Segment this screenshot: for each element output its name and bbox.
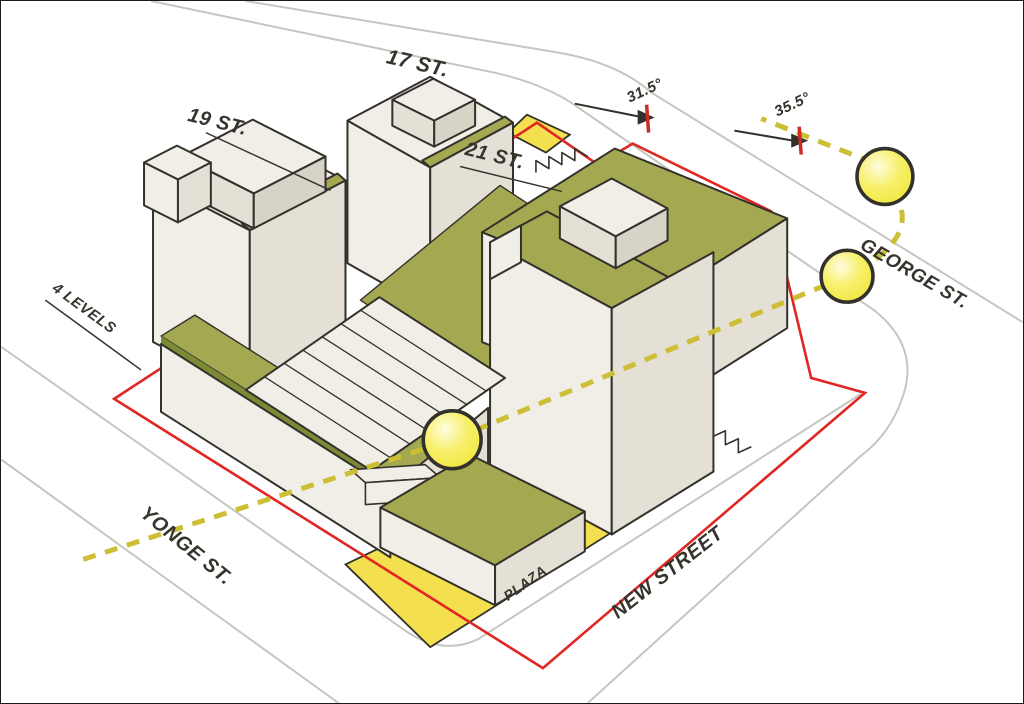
- angle-north-label: 31.5°: [624, 75, 666, 106]
- north-plaza-patch: [508, 115, 570, 153]
- massing-diagram-canvas: 31.5° 35.5° 17 ST. 19 ST. 21 ST. 4 LEVEL…: [0, 0, 1024, 704]
- street-17-label: 17 ST.: [384, 45, 451, 82]
- sun-icon: [423, 411, 481, 469]
- street-yonge-sw-curb: [1, 460, 338, 703]
- angle-arrow-line: [575, 104, 640, 117]
- sun-icon: [857, 149, 913, 205]
- massing-diagram: 31.5° 35.5° 17 ST. 19 ST. 21 ST. 4 LEVEL…: [1, 1, 1023, 703]
- tower-19-label: 19 ST.: [186, 104, 250, 140]
- angle-annotation-east: 35.5°: [734, 89, 813, 155]
- angle-red-tick: [647, 105, 649, 133]
- angle-arrow-line: [734, 131, 793, 141]
- angle-annotation-north: 31.5°: [575, 75, 666, 133]
- angle-red-tick: [799, 127, 801, 155]
- new-street-label: NEW STREET: [607, 521, 729, 623]
- angle-annotations: 31.5° 35.5°: [575, 75, 814, 155]
- sun-icon: [821, 250, 873, 302]
- angle-east-label: 35.5°: [772, 89, 814, 120]
